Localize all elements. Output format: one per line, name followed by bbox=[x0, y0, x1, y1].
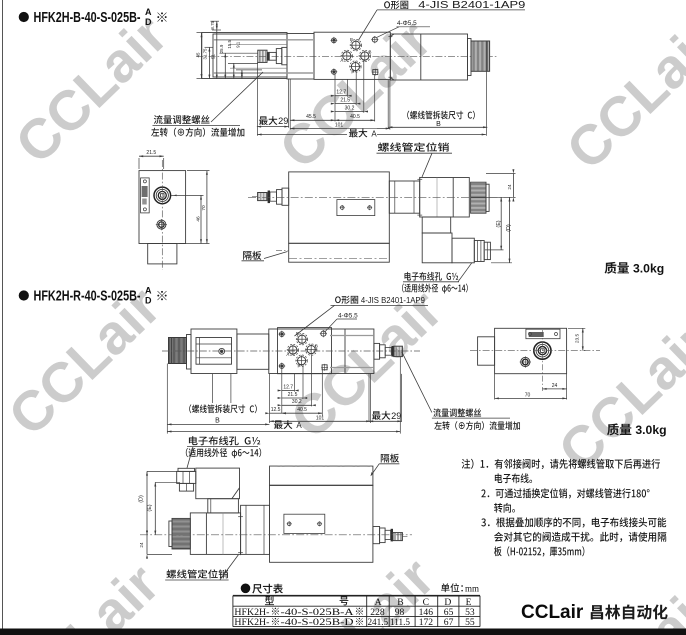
svg-text:241.5: 241.5 bbox=[367, 617, 388, 627]
svg-text:A: A bbox=[340, 58, 343, 63]
svg-text:4-Φ5.5: 4-Φ5.5 bbox=[397, 20, 417, 27]
svg-text:P: P bbox=[298, 364, 301, 369]
svg-text:B: B bbox=[369, 50, 372, 55]
svg-text:70: 70 bbox=[201, 205, 207, 211]
svg-text:B: B bbox=[436, 121, 441, 128]
svg-text:(E): (E) bbox=[496, 220, 502, 227]
svg-text:31.75: 31.75 bbox=[203, 48, 208, 60]
svg-text:51: 51 bbox=[210, 54, 215, 59]
svg-text:21.5: 21.5 bbox=[146, 150, 156, 156]
svg-text:101: 101 bbox=[335, 122, 344, 128]
svg-text:30.2: 30.2 bbox=[292, 399, 302, 405]
svg-text:4-Φ5.5: 4-Φ5.5 bbox=[338, 312, 358, 319]
svg-text:30.2: 30.2 bbox=[345, 105, 355, 111]
svg-text:(E): (E) bbox=[147, 504, 153, 511]
svg-text:B: B bbox=[315, 344, 318, 349]
svg-text:(D): (D) bbox=[139, 495, 145, 503]
svg-text:29: 29 bbox=[391, 411, 401, 421]
svg-text:3.0kg: 3.0kg bbox=[633, 262, 664, 276]
svg-text:HFK2H-: HFK2H- bbox=[234, 617, 269, 628]
svg-text:40.5: 40.5 bbox=[297, 407, 307, 413]
svg-text:8.75: 8.75 bbox=[210, 20, 215, 29]
svg-text:P: P bbox=[351, 70, 354, 75]
svg-text:12.7: 12.7 bbox=[283, 384, 293, 390]
svg-text:3.0kg: 3.0kg bbox=[635, 423, 666, 437]
svg-text:(D): (D) bbox=[506, 224, 512, 232]
svg-text:12.5: 12.5 bbox=[271, 407, 281, 413]
svg-text:B: B bbox=[215, 418, 220, 425]
svg-text:CCLair: CCLair bbox=[0, 552, 171, 635]
svg-text:40.5: 40.5 bbox=[350, 114, 360, 120]
svg-text:55: 55 bbox=[465, 617, 475, 628]
svg-text:CCLair: CCLair bbox=[521, 602, 584, 623]
svg-text:CCLair: CCLair bbox=[554, 9, 686, 182]
svg-text:24: 24 bbox=[139, 542, 144, 548]
svg-text:29: 29 bbox=[278, 116, 288, 126]
svg-text:A: A bbox=[145, 286, 152, 296]
svg-text:172: 172 bbox=[419, 617, 434, 628]
svg-text:A: A bbox=[145, 7, 152, 17]
svg-text:A: A bbox=[371, 130, 377, 139]
svg-text:B: B bbox=[350, 37, 353, 42]
svg-text:67: 67 bbox=[444, 617, 454, 628]
svg-text:A: A bbox=[286, 352, 289, 357]
svg-text:21.5: 21.5 bbox=[288, 392, 298, 398]
svg-text:D: D bbox=[145, 295, 152, 305]
svg-text:45.5: 45.5 bbox=[306, 114, 316, 120]
svg-text:25.9: 25.9 bbox=[219, 44, 224, 53]
svg-text:24: 24 bbox=[507, 184, 512, 190]
svg-text:CCLair: CCLair bbox=[546, 310, 686, 483]
svg-text:111.5: 111.5 bbox=[390, 617, 410, 627]
svg-text:15.5: 15.5 bbox=[227, 39, 232, 48]
svg-text:HFK2H-R-40-S-025B-: HFK2H-R-40-S-025B- bbox=[34, 288, 141, 305]
svg-text:-40-S-025B-D: -40-S-025B-D bbox=[281, 617, 354, 628]
svg-text:HFK2H-B-40-S-025B-: HFK2H-B-40-S-025B- bbox=[34, 9, 141, 26]
svg-text:70: 70 bbox=[525, 392, 531, 398]
svg-text:45: 45 bbox=[195, 52, 200, 57]
svg-text:23.5: 23.5 bbox=[574, 334, 580, 344]
svg-text:101: 101 bbox=[316, 416, 325, 422]
svg-text:12.7: 12.7 bbox=[336, 90, 346, 96]
svg-text:mm: mm bbox=[465, 583, 479, 593]
svg-text:46: 46 bbox=[195, 216, 201, 222]
svg-text:9.1: 9.1 bbox=[235, 41, 240, 48]
svg-text:A: A bbox=[296, 421, 302, 430]
svg-text:D: D bbox=[145, 17, 152, 27]
svg-text:4-JIS B2401-1AP9: 4-JIS B2401-1AP9 bbox=[361, 295, 425, 305]
svg-text:21.5: 21.5 bbox=[340, 98, 350, 104]
svg-text:24: 24 bbox=[552, 383, 558, 389]
